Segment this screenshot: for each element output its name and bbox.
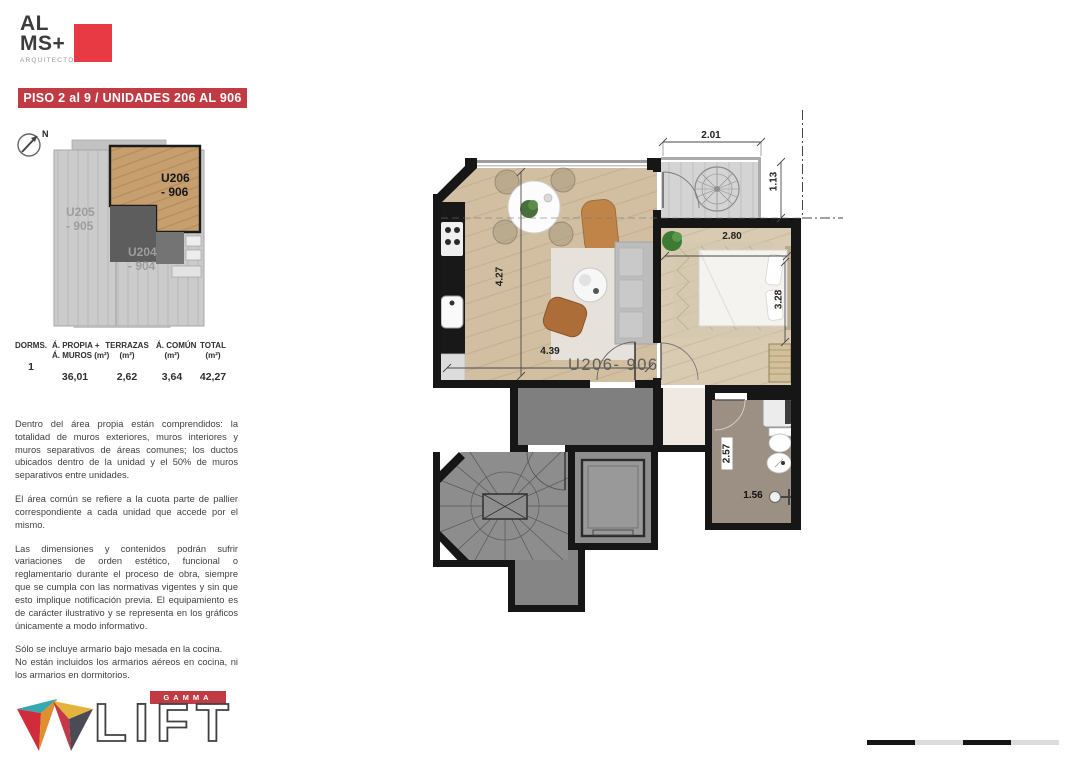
kitchen: [440, 202, 465, 382]
scale-bar-segment: [915, 740, 963, 745]
table-col-propia: Á. PROPIA + Á. MUROS (m²) 36,01: [52, 341, 98, 383]
table-col-comun: Á. COMÚN (m²) 3,64: [156, 341, 188, 383]
wardrobe: [769, 344, 791, 382]
bath-sink-icon: [767, 453, 791, 473]
bicycle-icon: [695, 167, 739, 211]
scale-bar-segment: [867, 740, 915, 745]
elevator: [582, 446, 644, 536]
coffee-table: [573, 268, 607, 302]
comun-value: 3,64: [156, 371, 188, 383]
svg-text:- 906: - 906: [161, 185, 189, 199]
brand-logo-mark: [15, 693, 95, 755]
keyplan: N U205 - 905 U206: [14, 126, 224, 328]
dim-living-depth: 4.27: [495, 261, 506, 293]
armchair-top: [580, 198, 619, 255]
north-label: N: [42, 129, 49, 139]
logo-text-line1: AL: [20, 14, 80, 34]
keyplan-graphic: N U205 - 905 U206: [14, 126, 224, 328]
note-paragraph-4: Sólo se incluye armario bajo mesada en l…: [15, 643, 238, 681]
logo-text-line2: MS+: [20, 34, 80, 54]
total-value: 42,27: [188, 371, 238, 383]
note-paragraph-2: El área común se refiere a la cuota part…: [15, 493, 238, 531]
floor-plan: 2.01 1.13 2.80 3.28 4.27 4.39 2.57 1.56 …: [425, 110, 845, 620]
dim-living-width: 4.39: [528, 346, 572, 357]
terrazas-value: 2,62: [98, 371, 156, 383]
scale-bar-segment: [963, 740, 1011, 745]
architect-logo: AL MS+ ARQUITECTOS: [20, 14, 80, 64]
logo-subtitle: ARQUITECTOS: [20, 57, 80, 64]
dorms-value: 1: [10, 361, 52, 373]
keyplan-label-u206: U206: [161, 171, 190, 185]
stove-icon: [441, 222, 463, 256]
unit-label: U206- 906: [568, 356, 659, 375]
keyplan-label-u204: U204: [128, 245, 157, 259]
dim-bath-depth: 2.57: [722, 438, 733, 470]
scale-bar-segment: [1011, 740, 1059, 745]
corridor-stub-floor: [515, 560, 578, 605]
north-compass-icon: N: [18, 129, 49, 156]
scale-bar: [867, 740, 1059, 745]
dim-terrace-depth: 1.13: [769, 166, 780, 198]
note-paragraph-3: Las dimensiones y contenidos podrán sufr…: [15, 543, 238, 633]
note-paragraph-1: Dentro del área propia están comprendido…: [15, 418, 238, 482]
legal-notes: Dentro del área propia están comprendido…: [15, 418, 238, 682]
table-col-total: TOTAL (m²) 42,27: [188, 341, 238, 383]
dim-bath-width: 1.56: [735, 490, 771, 501]
floor-units-banner: PISO 2 al 9 / UNIDADES 206 AL 906: [18, 88, 247, 108]
brand-lift-wordmark: LIFT: [94, 696, 236, 750]
sofa: [615, 242, 657, 344]
areas-table: DORMS. 1 Á. PROPIA + Á. MUROS (m²) 36,01…: [10, 341, 250, 383]
keyplan-building: U205 - 905 U206 - 906 U204 - 904: [54, 140, 204, 328]
propia-value: 36,01: [52, 371, 98, 383]
table-col-dorms: DORMS. 1: [10, 341, 52, 383]
table-col-terrazas: TERRAZAS (m²) 2,62: [98, 341, 156, 383]
logo-red-square: [74, 24, 112, 62]
elevator-car: [582, 460, 644, 536]
svg-text:- 904: - 904: [128, 259, 156, 273]
plan-sheet: AL MS+ ARQUITECTOS PISO 2 al 9 / UNIDADE…: [0, 0, 1079, 764]
vestibule-floor: [663, 388, 705, 445]
keyplan-label-u205: U205: [66, 205, 95, 219]
hall-floor: [518, 388, 653, 445]
dim-bedroom-width: 2.80: [710, 231, 754, 242]
dim-bedroom-depth: 3.28: [774, 284, 785, 316]
dim-terrace-width: 2.01: [683, 130, 739, 141]
svg-text:- 905: - 905: [66, 219, 94, 233]
toilet-icon: [769, 428, 792, 452]
